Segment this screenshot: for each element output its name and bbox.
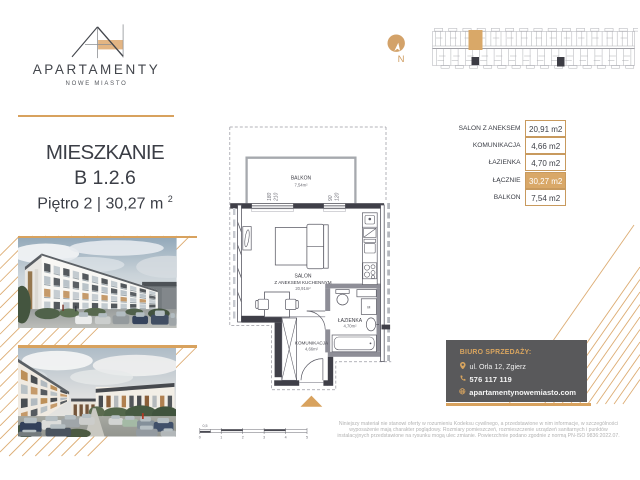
svg-text:0,5: 0,5 [203,424,208,428]
svg-text:BALKON: BALKON [291,176,312,182]
svg-text:Z ANEKSEM KUCHENNYM: Z ANEKSEM KUCHENNYM [274,280,331,285]
svg-text:4: 4 [285,436,287,440]
svg-text:1: 1 [220,436,222,440]
svg-text:7,54m²: 7,54m² [294,183,308,188]
svg-text:180: 180 [267,192,273,201]
svg-text:210: 210 [274,192,280,202]
svg-text:SALON: SALON [295,274,312,280]
svg-text:5: 5 [306,436,308,440]
svg-text:20,91m²: 20,91m² [295,286,311,291]
svg-text:4,66m²: 4,66m² [305,347,319,352]
svg-text:3: 3 [263,436,265,440]
svg-text:2: 2 [242,436,244,440]
svg-text:90: 90 [328,195,334,201]
svg-text:0: 0 [199,436,201,440]
svg-text:M: M [367,306,370,310]
svg-text:120: 120 [335,192,341,201]
svg-text:N: N [398,54,405,65]
svg-text:KOMUNIKACJA: KOMUNIKACJA [295,341,329,346]
svg-text:4,70m²: 4,70m² [343,324,357,329]
